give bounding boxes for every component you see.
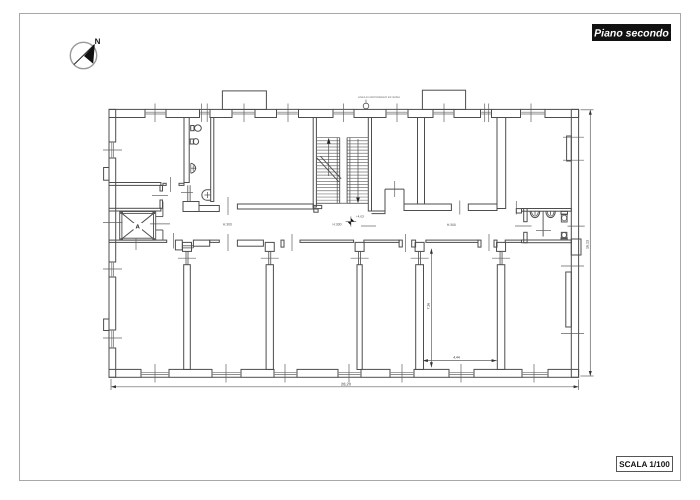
svg-text:Piano secondo: Piano secondo bbox=[594, 27, 669, 39]
svg-text:H:300: H:300 bbox=[223, 222, 232, 226]
svg-text:A: A bbox=[136, 224, 141, 231]
svg-text:16,13: 16,13 bbox=[586, 240, 590, 249]
svg-text:28,20: 28,20 bbox=[341, 381, 352, 386]
svg-text:4,44: 4,44 bbox=[453, 355, 460, 359]
svg-text:H:300: H:300 bbox=[447, 223, 456, 227]
svg-text:H:300: H:300 bbox=[332, 222, 341, 226]
svg-text:7,36: 7,36 bbox=[427, 303, 431, 310]
svg-text:LINEA DI ANCORAGGIO ESTERNA: LINEA DI ANCORAGGIO ESTERNA bbox=[358, 96, 400, 99]
svg-text:+4,63: +4,63 bbox=[356, 214, 364, 218]
svg-text:N: N bbox=[95, 37, 101, 46]
svg-text:SCALA 1/100: SCALA 1/100 bbox=[619, 460, 670, 469]
